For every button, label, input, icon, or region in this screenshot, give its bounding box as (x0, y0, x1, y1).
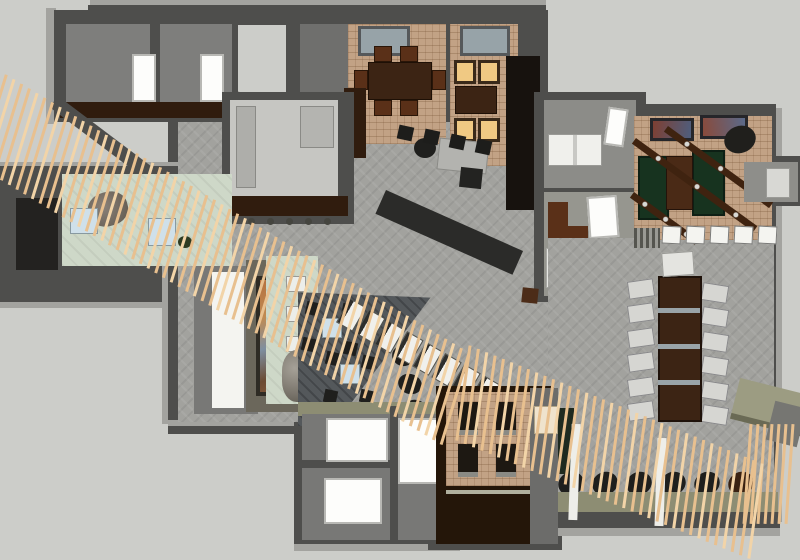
floorplan-render (0, 0, 800, 560)
pdr1-chair (400, 46, 418, 62)
bar-counter-top (60, 102, 236, 118)
pillar-cap (534, 406, 558, 434)
white-seat (758, 226, 778, 245)
white-seat (686, 226, 706, 245)
plant (178, 236, 192, 248)
communal-chair (627, 303, 655, 324)
lounge-chair (361, 355, 376, 370)
counter-stool (267, 218, 274, 225)
communal-chair (627, 327, 655, 348)
pdr1-chair (432, 70, 446, 90)
communal-chairs-right (702, 284, 732, 424)
communal-chairs-left (628, 280, 654, 420)
storage-door (132, 54, 156, 102)
communal-chair (701, 380, 729, 402)
wood-slat (0, 79, 15, 172)
communal-table (658, 276, 702, 422)
host-chair (459, 167, 483, 189)
communal-chair (627, 351, 655, 372)
entry-table (70, 208, 98, 234)
lounge-chair (301, 337, 316, 352)
pdr1-chair (374, 100, 392, 116)
counter-stool (305, 218, 312, 225)
bar-stool-square (423, 129, 441, 146)
square-stool (521, 287, 538, 304)
entry-table (148, 218, 176, 246)
table-steel-band (658, 380, 700, 385)
wall-slat-panel (746, 424, 798, 524)
lounge-chair (343, 341, 358, 356)
pdr1-chair (374, 46, 392, 62)
pdr2-table (455, 86, 497, 114)
booth-chair (496, 402, 516, 435)
communal-chair (701, 331, 729, 353)
storage-door (200, 54, 224, 102)
striped-bench (634, 228, 660, 248)
pdr1-chair (400, 100, 418, 116)
communal-chair (627, 376, 655, 397)
counter-stool (286, 218, 293, 225)
table-steel-band (658, 308, 700, 313)
kitchen-pass-counter (224, 196, 348, 216)
lounge-chair (325, 351, 340, 366)
communal-chair (627, 400, 655, 421)
white-seat (662, 226, 682, 245)
lounge-table (340, 364, 360, 384)
vestibule-door (766, 168, 790, 198)
communal-chair (701, 404, 729, 426)
communal-chair (701, 282, 729, 304)
pdr1-table (368, 62, 432, 100)
bar-stool-square (397, 125, 415, 142)
booth-chair (496, 444, 516, 477)
pdr2-lit-chair (478, 60, 500, 84)
kitchen-stool-row (248, 218, 344, 226)
lounge-chair (305, 301, 320, 316)
kitchen-counter (236, 106, 256, 188)
kitchen-counter (300, 106, 334, 148)
pdr2-lit-chair (454, 60, 476, 84)
office1-counter (548, 134, 602, 166)
counter-stool (324, 218, 331, 225)
game-seat-row (662, 226, 772, 244)
white-seat (710, 226, 730, 245)
communal-chair (701, 355, 729, 377)
entry-doorway (16, 198, 58, 270)
wood-slat (0, 74, 8, 167)
table-steel-band (658, 344, 700, 349)
wall-bench (286, 276, 306, 292)
communal-chair (701, 306, 729, 328)
corridor-light-floor (212, 272, 244, 408)
white-seat (734, 226, 754, 245)
office2-door (587, 195, 620, 239)
bar-stool-square (449, 134, 467, 151)
pdr2-skylight (460, 26, 510, 56)
head-chair (661, 251, 695, 277)
pdr1-chair (354, 70, 368, 90)
communal-chair (627, 278, 655, 299)
booth-chair (458, 444, 478, 477)
restroom-fixture (324, 478, 382, 524)
counter-stool (248, 218, 255, 225)
restroom-divider (390, 406, 398, 540)
booth-chair (458, 402, 478, 435)
bar-stool-square (475, 139, 493, 156)
restroom-fixture (326, 418, 388, 462)
bottom-wall-cap (556, 528, 780, 536)
